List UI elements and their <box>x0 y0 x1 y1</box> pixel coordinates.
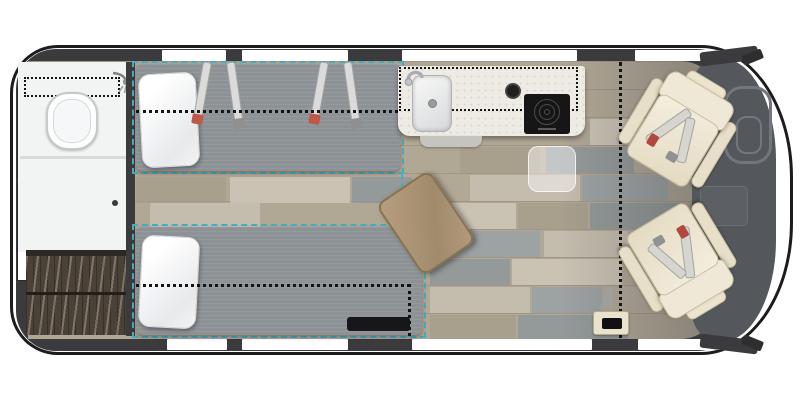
faucet-icon <box>402 62 428 88</box>
table-floor-mount <box>593 311 629 335</box>
toilet-lid <box>53 99 91 143</box>
induction-cooktop <box>524 94 570 134</box>
table-mount-slot <box>602 318 622 329</box>
sink-drain <box>428 99 437 108</box>
window-top-2 <box>242 50 348 61</box>
under-bed-heater-vent <box>347 317 410 331</box>
seat-belt-buckle <box>308 113 321 125</box>
flip-up-shelf-ghost <box>528 146 576 192</box>
table-mount-bracket-icon <box>596 283 622 312</box>
seat-belt-buckle <box>191 113 204 125</box>
config-dotted-line-bed2 <box>136 284 410 287</box>
floor-plank <box>430 287 530 313</box>
window-top-3 <box>402 50 577 61</box>
burner-knob <box>505 83 521 99</box>
seat-belt-buckle <box>350 118 362 129</box>
van-floor-plan <box>0 0 800 400</box>
pillow-bottom <box>138 235 201 330</box>
floor-plank <box>230 177 350 203</box>
config-dotted-line-bed2-vertical <box>408 284 411 336</box>
seat-belt-buckle <box>233 118 245 129</box>
counter-step <box>420 136 482 147</box>
toilet <box>46 92 98 150</box>
bath-door-divider <box>20 156 127 159</box>
window-bottom-3 <box>412 339 592 350</box>
window-bottom-2 <box>242 339 348 350</box>
bath-door-handle <box>112 200 118 206</box>
cooktop-ring <box>544 109 550 115</box>
cooktop-label-mark <box>538 128 556 130</box>
wardrobe-hanging-rod <box>26 292 126 295</box>
floor-plank <box>430 315 516 339</box>
floor-plank <box>136 177 226 203</box>
window-bottom-1 <box>167 339 227 350</box>
window-top-1 <box>162 50 226 61</box>
